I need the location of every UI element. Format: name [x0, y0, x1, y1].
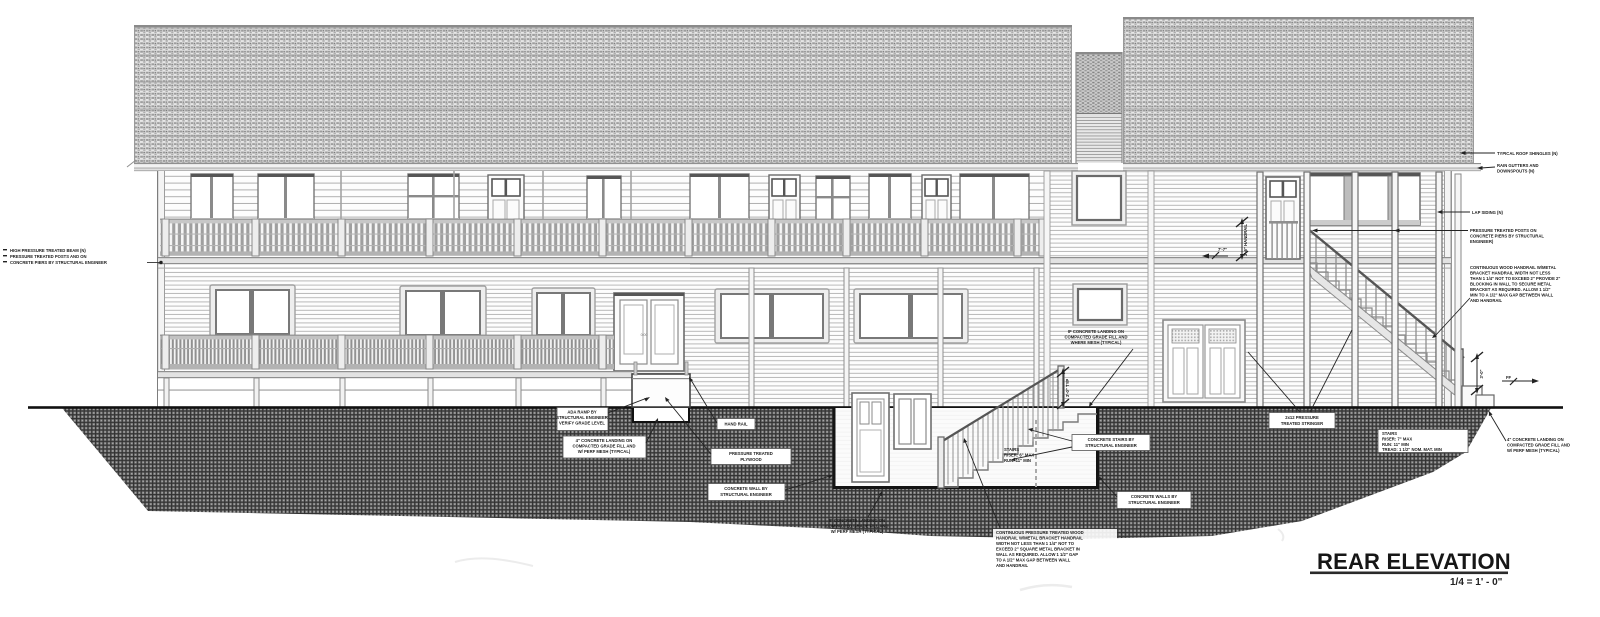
- svg-text:IF CONCRETE LANDING ON: IF CONCRETE LANDING ON: [1068, 329, 1124, 334]
- svg-text:CONCRETE PIERS BY STRUCTURAL: CONCRETE PIERS BY STRUCTURAL: [1470, 234, 1544, 239]
- svg-text:BLOCKING IN WALL TO SECURE MET: BLOCKING IN WALL TO SECURE METAL: [1470, 282, 1552, 287]
- svg-text:RAIN GUTTERS AND: RAIN GUTTERS AND: [1497, 163, 1539, 168]
- svg-text:HIGH PRESSURE TREATED BEAM (N): HIGH PRESSURE TREATED BEAM (N): [10, 248, 86, 253]
- svg-text:HAND RAIL: HAND RAIL: [724, 422, 747, 427]
- svg-text:MIN TO A 1/2" MAX GAP BETWEEN: MIN TO A 1/2" MAX GAP BETWEEN WALL: [1470, 293, 1554, 298]
- svg-text:REAR ELEVATION: REAR ELEVATION: [1317, 549, 1511, 574]
- svg-text:2x12 PRESSURE: 2x12 PRESSURE: [1285, 415, 1319, 420]
- svg-text:PRESSURE TREATED: PRESSURE TREATED: [729, 451, 773, 456]
- svg-text:PLYWOOD: PLYWOOD: [740, 457, 761, 462]
- svg-text:STRUCTURAL ENGINEER: STRUCTURAL ENGINEER: [1128, 500, 1180, 505]
- svg-text:DOWNSPOUTS (N): DOWNSPOUTS (N): [1497, 169, 1535, 174]
- svg-text:AND HANDRAIL: AND HANDRAIL: [996, 563, 1029, 568]
- svg-text:CONCRETE WALLS BY: CONCRETE WALLS BY: [1131, 494, 1178, 499]
- svg-text:3'-6" HANDRAIL: 3'-6" HANDRAIL: [1243, 224, 1248, 257]
- svg-text:W/ PERF MESH (TYPICAL): W/ PERF MESH (TYPICAL): [1507, 448, 1560, 453]
- svg-text:3'-0" TYP: 3'-0" TYP: [1065, 379, 1070, 398]
- svg-text:BRACKET HANDRAIL WIDTH NOT LES: BRACKET HANDRAIL WIDTH NOT LESS: [1470, 271, 1551, 276]
- svg-text:CONTINUOUS PRESSURE TREATED WO: CONTINUOUS PRESSURE TREATED WOOD: [996, 530, 1084, 535]
- svg-text:COMPACTED GRADE FILL AND: COMPACTED GRADE FILL AND: [573, 444, 636, 449]
- svg-text:7'-7": 7'-7": [1218, 247, 1227, 252]
- svg-text:HANDRAIL W/METAL BRACKET HANDR: HANDRAIL W/METAL BRACKET HANDRAIL: [996, 536, 1083, 541]
- svg-text:COMPACTED GRADE FILL AND: COMPACTED GRADE FILL AND: [1507, 443, 1570, 448]
- svg-text:EXCEED 2" SQUARE METAL BRACKET: EXCEED 2" SQUARE METAL BRACKET IN: [996, 547, 1080, 552]
- svg-text:LAP SIDING (N): LAP SIDING (N): [1472, 210, 1503, 215]
- svg-text:WIDTH NOT LESS THAN 1 1/4" NOT: WIDTH NOT LESS THAN 1 1/4" NOT TO: [996, 541, 1075, 546]
- svg-text:CONCRETE STAIRS BY: CONCRETE STAIRS BY: [1088, 437, 1135, 442]
- svg-text:W/ PERF MESH (TYPICAL): W/ PERF MESH (TYPICAL): [578, 449, 631, 454]
- svg-text:STAIRS: STAIRS: [1004, 447, 1019, 452]
- svg-text:ENGINEER): ENGINEER): [1470, 239, 1494, 244]
- svg-text:RISER: 6" MAX: RISER: 6" MAX: [1004, 453, 1034, 458]
- svg-text:TREATED STRINGER: TREATED STRINGER: [1281, 421, 1323, 426]
- svg-text:AND HANDRAIL: AND HANDRAIL: [1470, 298, 1503, 303]
- svg-text:CONTINUOUS WOOD HANDRAIL W/MET: CONTINUOUS WOOD HANDRAIL W/METAL: [1470, 265, 1557, 270]
- svg-text:CONCRETE WALL BY: CONCRETE WALL BY: [724, 486, 768, 491]
- svg-text:RUN: 11" MIN: RUN: 11" MIN: [1004, 458, 1031, 463]
- svg-text:IF CONCRETE LANDING ON: IF CONCRETE LANDING ON: [829, 518, 885, 523]
- svg-text:4" CONCRETE LANDING ON: 4" CONCRETE LANDING ON: [1507, 437, 1564, 442]
- svg-text:STRUCTURAL ENGINEER: STRUCTURAL ENGINEER: [720, 492, 772, 497]
- svg-text:RISER: 7" MAX: RISER: 7" MAX: [1382, 437, 1412, 442]
- svg-text:PRESSURE TREATED POSTS AND ON: PRESSURE TREATED POSTS AND ON: [10, 254, 87, 259]
- svg-text:STRUCTURAL ENGINEER: STRUCTURAL ENGINEER: [556, 415, 608, 420]
- svg-text:TREAD: 1 1/2" NOM. MAT. MIN: TREAD: 1 1/2" NOM. MAT. MIN: [1382, 447, 1442, 452]
- svg-text:ADA RAMP BY: ADA RAMP BY: [567, 410, 597, 415]
- svg-text:VERIFY GRADE LEVEL: VERIFY GRADE LEVEL: [559, 421, 605, 426]
- svg-text:STAIRS: STAIRS: [1382, 431, 1397, 436]
- svg-text:3'-0": 3'-0": [1479, 369, 1484, 378]
- svg-text:WHERE MESH (TYPICAL): WHERE MESH (TYPICAL): [1071, 340, 1122, 345]
- svg-text:BRACKET AS REQUIRED. ALLOW 1 1: BRACKET AS REQUIRED. ALLOW 1 1/2": [1470, 287, 1551, 292]
- svg-text:TYPICAL ROOF SHINGLES (N): TYPICAL ROOF SHINGLES (N): [1497, 151, 1558, 156]
- svg-text:4" CONCRETE LANDING ON: 4" CONCRETE LANDING ON: [576, 438, 633, 443]
- svg-text:STRUCTURAL ENGINEER: STRUCTURAL ENGINEER: [1085, 443, 1137, 448]
- svg-text:TO A 1/2" MAX GAP BETWEEN WALL: TO A 1/2" MAX GAP BETWEEN WALL: [996, 558, 1071, 563]
- svg-text:THAN 1 1/4" NOT TO EXCEED 2" P: THAN 1 1/4" NOT TO EXCEED 2" PROVIDE 2": [1470, 276, 1560, 281]
- svg-text:0.00: 0.00: [641, 333, 648, 337]
- svg-text:COMPACTED GRADE FILL AND: COMPACTED GRADE FILL AND: [1065, 335, 1128, 340]
- svg-text:COMPACTED GRADE FILL AND: COMPACTED GRADE FILL AND: [826, 524, 889, 529]
- svg-text:PRESSURE TREATED POSTS ON: PRESSURE TREATED POSTS ON: [1470, 228, 1536, 233]
- svg-text:1/4 = 1' - 0": 1/4 = 1' - 0": [1450, 577, 1503, 588]
- svg-text:WALL AS REQUIRED. ALLOW 1 1/2": WALL AS REQUIRED. ALLOW 1 1/2" GAP: [996, 552, 1078, 557]
- svg-text:CONCRETE PIERS BY STRUCTURAL E: CONCRETE PIERS BY STRUCTURAL ENGINEER: [10, 260, 107, 265]
- svg-text:FF: FF: [1506, 375, 1512, 380]
- svg-text:W/ PERF MESH (TYPICAL): W/ PERF MESH (TYPICAL): [831, 529, 884, 534]
